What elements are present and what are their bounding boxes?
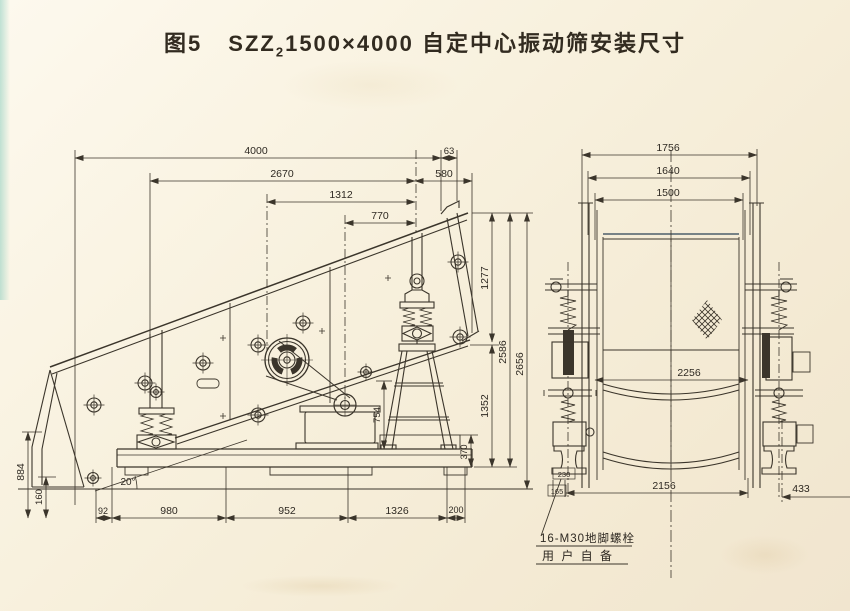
dim-952: 952 xyxy=(278,505,296,517)
dim-770: 770 xyxy=(371,210,389,222)
drawing-sheet: 图5SZZ21500×4000 自定中心振动筛安装尺寸 xyxy=(0,0,850,611)
note-labels: 16-M30地脚螺栓 用 户 自 备 xyxy=(540,531,635,563)
dim-1500: 1500 xyxy=(656,187,680,199)
left-hanger-assembly xyxy=(544,262,600,500)
end-view xyxy=(536,203,813,564)
dim-433: 433 xyxy=(792,483,810,495)
dim-1640: 1640 xyxy=(656,165,680,177)
dim-370: 370 xyxy=(459,444,469,459)
dim-160: 160 xyxy=(34,489,45,505)
note-user-supplied: 用 户 自 备 xyxy=(542,548,614,563)
dim-884: 884 xyxy=(15,463,27,481)
dim-2256: 2256 xyxy=(677,367,701,379)
dim-165: 165 xyxy=(551,487,564,496)
dim-754: 754 xyxy=(372,407,383,423)
dim-63: 63 xyxy=(444,146,455,157)
base-frame xyxy=(18,435,533,489)
dim-200: 200 xyxy=(448,505,463,515)
screen-mesh-hatch xyxy=(692,300,722,340)
dim-angle-20: 20° xyxy=(120,477,135,488)
support-tower xyxy=(381,344,456,449)
dim-4000: 4000 xyxy=(244,145,268,157)
side-view xyxy=(18,201,533,489)
dim-580: 580 xyxy=(435,168,453,180)
dim-2156: 2156 xyxy=(652,480,676,492)
dim-92: 92 xyxy=(98,506,108,516)
dim-2586: 2586 xyxy=(497,340,509,364)
dim-1326: 1326 xyxy=(385,505,409,517)
dim-2656: 2656 xyxy=(514,352,526,376)
dim-1312: 1312 xyxy=(329,189,353,201)
dim-1352: 1352 xyxy=(479,394,491,418)
dim-1277: 1277 xyxy=(479,266,491,290)
dim-1756: 1756 xyxy=(656,142,680,154)
discharge-spring-assembly xyxy=(400,233,434,344)
dim-2670: 2670 xyxy=(270,168,294,180)
technical-drawing: 4000 63 2670 580 1312 770 1277 2586 2656… xyxy=(0,0,850,611)
motor xyxy=(296,394,380,449)
flywheel xyxy=(261,334,313,386)
note-anchor-bolt: 16-M30地脚螺栓 xyxy=(540,531,635,545)
dim-980: 980 xyxy=(160,505,178,517)
dim-230: 230 xyxy=(558,470,571,479)
end-view-dimensions xyxy=(548,149,850,578)
